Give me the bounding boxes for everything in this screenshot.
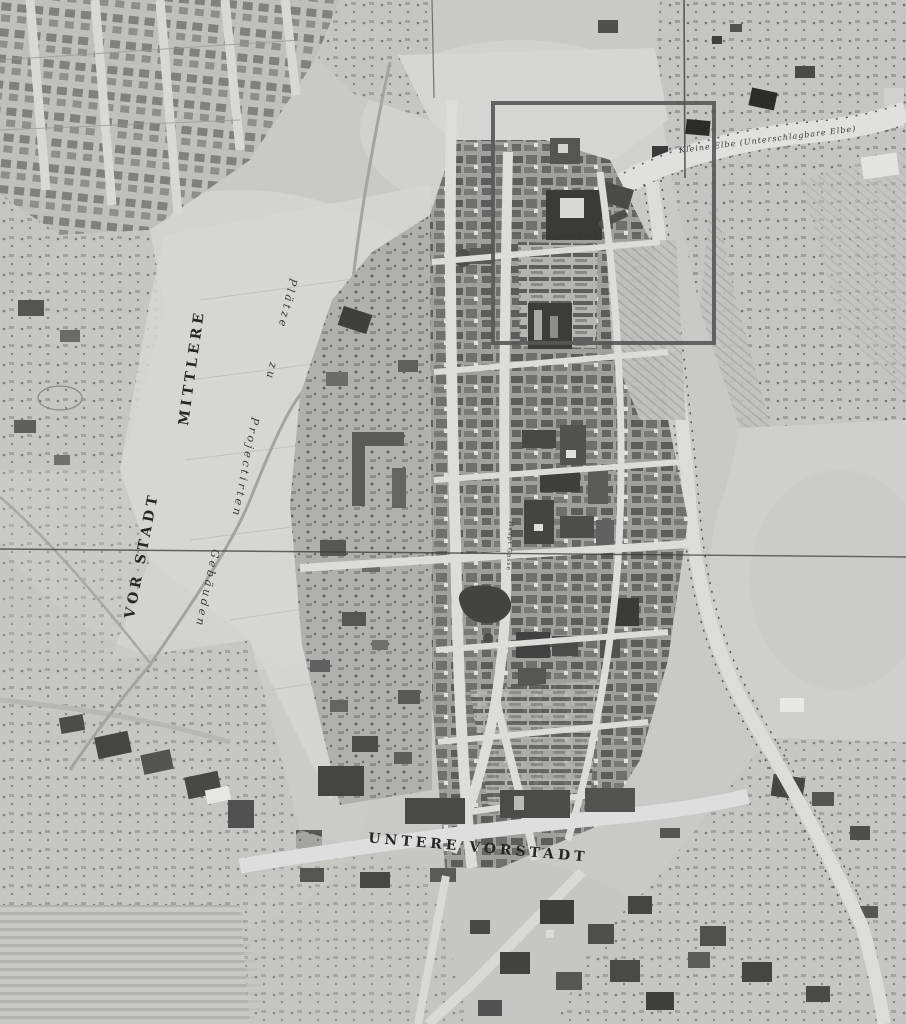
map-artwork: MITTLERE VOR STADT Plätze zu Projectirte… xyxy=(0,0,906,1024)
map-canvas[interactable]: MITTLERE VOR STADT Plätze zu Projectirte… xyxy=(0,0,906,1024)
